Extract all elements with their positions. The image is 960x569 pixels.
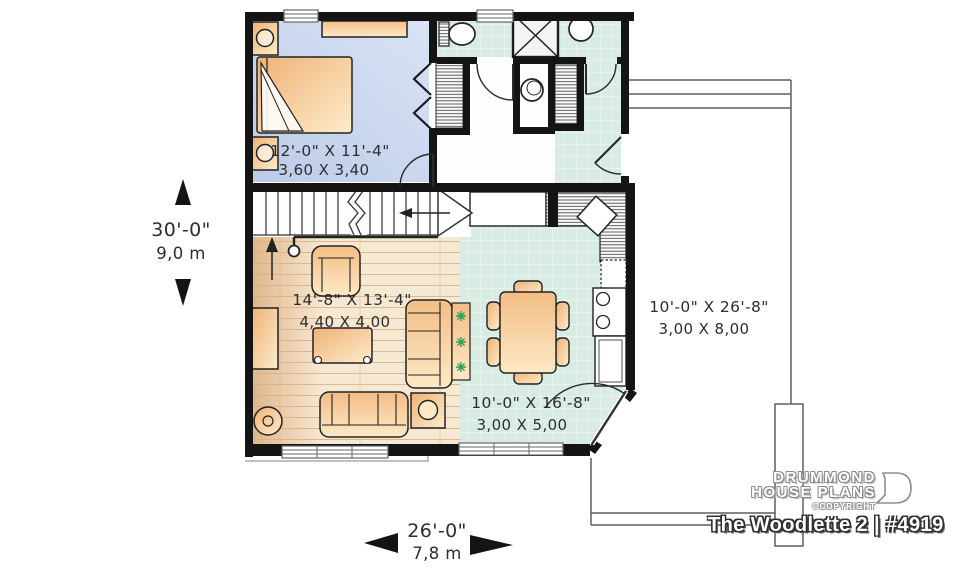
deck-dim-metric: 3,00 X 8,00 — [658, 320, 749, 338]
brand-copyright: ©COPYRIGHT — [700, 503, 876, 511]
refrigerator — [595, 336, 626, 386]
depth-imperial: 30'-0" — [151, 219, 210, 241]
wall-left — [245, 12, 253, 457]
plan-title: The Woodlette 2 | #4919 — [708, 514, 958, 537]
toilet-icon — [449, 23, 475, 45]
depth-metric: 9,0 m — [156, 244, 206, 263]
table-caster — [315, 357, 322, 364]
deck-railing-top — [629, 80, 791, 108]
wall-bath-south-1 — [437, 57, 477, 64]
window — [459, 443, 563, 455]
wall-nook-south — [513, 127, 555, 134]
wall-kitchen-stub — [548, 191, 558, 227]
pedestal-sink-icon — [521, 79, 543, 101]
drummond-logo-icon — [875, 468, 917, 510]
lamp-icon — [419, 401, 438, 420]
wall-kitchen-right — [626, 183, 635, 390]
arrow-left-icon — [364, 533, 398, 553]
dresser — [322, 21, 407, 37]
kitchen-dim-metric: 3,00 X 5,00 — [476, 416, 567, 434]
dining-chair — [556, 302, 569, 330]
window — [477, 10, 513, 22]
armchair — [312, 246, 360, 296]
table-caster — [364, 357, 371, 364]
wall-closet2-east — [577, 57, 584, 130]
dining-chair — [487, 338, 500, 366]
width-imperial: 26'-0" — [407, 520, 466, 542]
brand-name-line2: HOUSE PLANS — [700, 485, 876, 500]
wall-closet1-south — [436, 128, 470, 135]
entry-floor-2 — [555, 131, 584, 183]
living-dim-imperial: 14'-8" X 13'-4" — [292, 291, 412, 309]
dining-chair — [487, 302, 500, 330]
brand-block: DRUMMOND HOUSE PLANS ©COPYRIGHT — [700, 470, 876, 511]
wall-closet2-south — [553, 124, 584, 131]
arrow-down-icon — [175, 279, 191, 306]
newel-post — [289, 246, 300, 257]
wall-closet-east — [463, 57, 470, 134]
entry-floor — [584, 21, 621, 183]
dining-table — [500, 292, 556, 373]
lamp-icon — [257, 30, 274, 47]
closet-shelves — [555, 64, 577, 124]
overall-depth-dimension: 30'-0" 9,0 m — [151, 179, 210, 306]
sofa — [320, 392, 408, 437]
hallway-floor — [470, 64, 513, 184]
dishwasher — [601, 260, 626, 290]
round-table — [254, 407, 282, 435]
coffee-table — [313, 328, 372, 363]
window — [282, 446, 388, 458]
wall-right-upper — [621, 12, 629, 134]
floor-plan-image: 12'-0" X 11'-4" 3,60 X 3,40 14'-8" X 13'… — [0, 0, 960, 569]
bedroom-dim-metric: 3,60 X 3,40 — [278, 161, 369, 179]
arrow-right-icon — [470, 535, 513, 555]
width-metric: 7,8 m — [412, 544, 462, 563]
wall-nook-west — [513, 57, 520, 134]
dining-chair — [556, 338, 569, 366]
window — [284, 10, 318, 22]
tv-unit — [252, 308, 278, 369]
kitchen-dim-imperial: 10'-0" X 16'-8" — [471, 394, 591, 412]
landing-floor — [437, 135, 470, 184]
kitchen-peninsula — [470, 192, 546, 226]
toilet-tank — [439, 22, 449, 46]
wall-bath-south-3 — [617, 57, 629, 64]
deck-dim-imperial: 10'-0" X 26'-8" — [649, 298, 769, 316]
brand-name-line1: DRUMMOND — [700, 470, 876, 485]
living-dim-metric: 4,40 X 4,00 — [299, 313, 390, 331]
closet-shelves — [436, 63, 463, 128]
arrow-up-icon — [175, 179, 191, 205]
wall-bedroom-east-upper — [429, 12, 437, 63]
overall-width-dimension: 26'-0" 7,8 m — [364, 520, 513, 563]
wall-middle — [249, 183, 634, 192]
wall-nook-east — [548, 57, 555, 134]
bedroom-dim-imperial: 12'-0" X 11'-4" — [270, 142, 390, 160]
